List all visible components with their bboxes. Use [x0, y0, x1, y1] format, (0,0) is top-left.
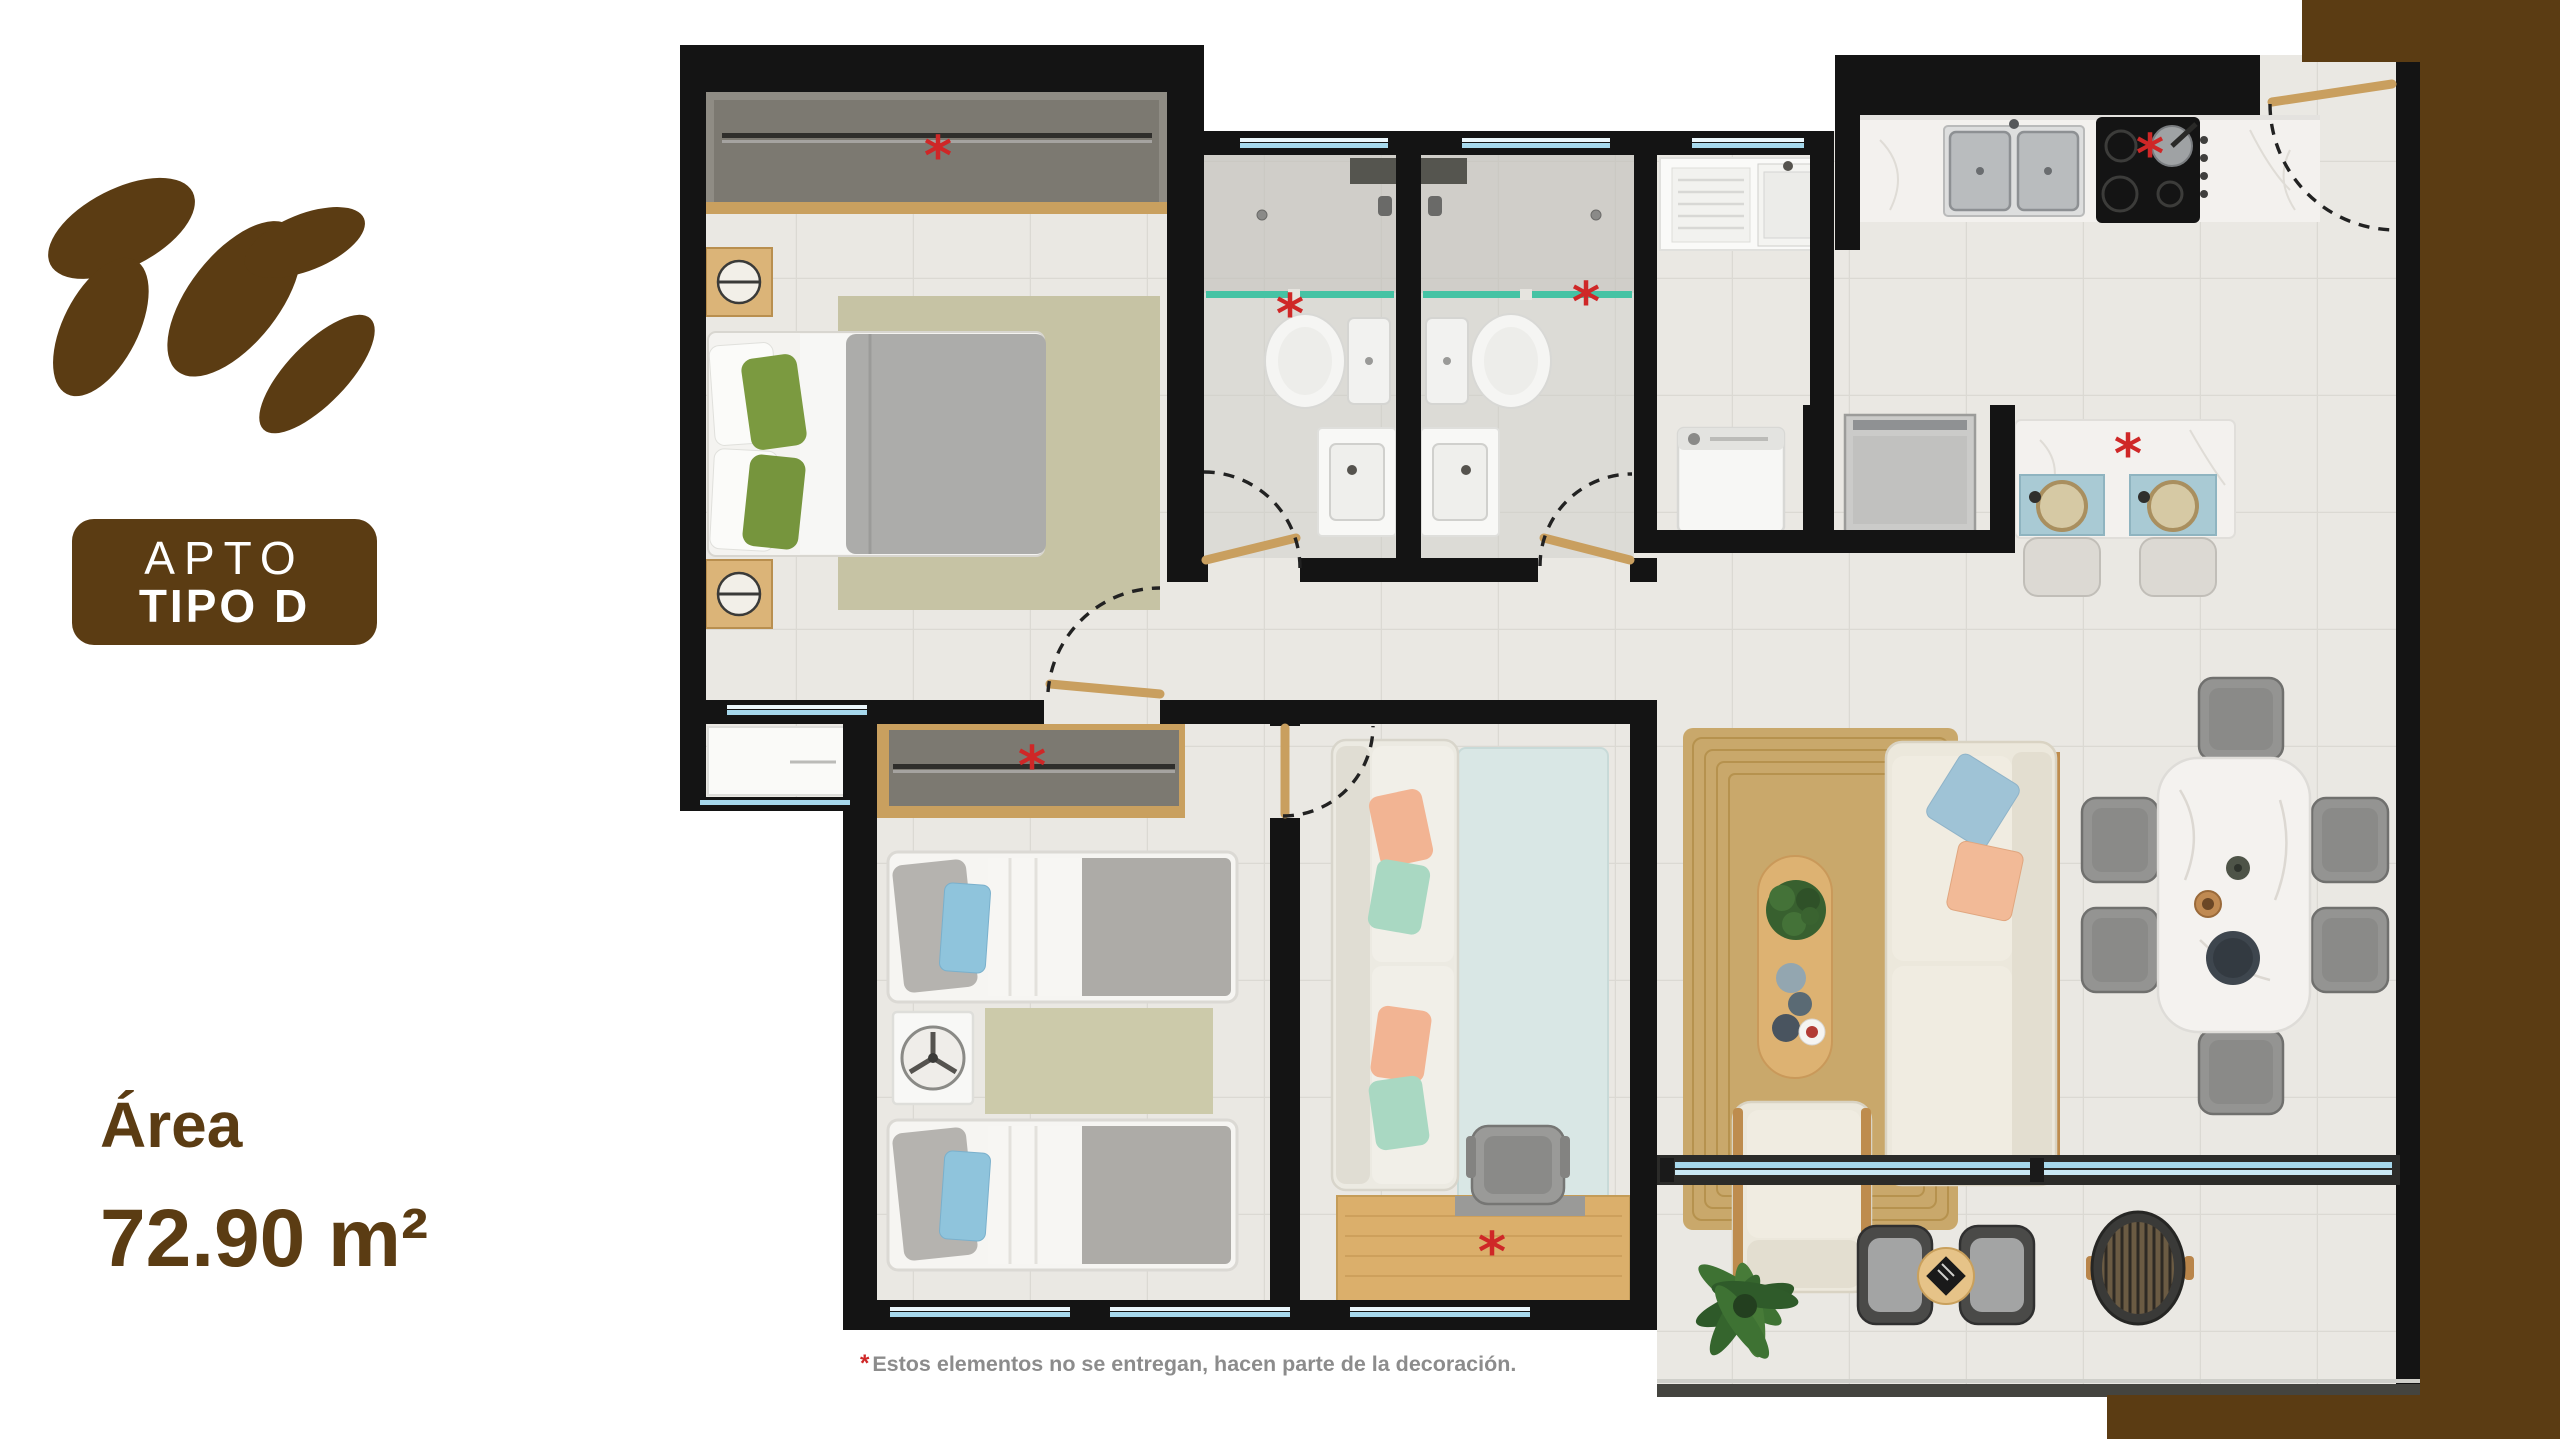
fan-nightstand — [893, 1012, 973, 1104]
bedroom2-rug — [985, 1008, 1213, 1114]
laundry-sink — [1660, 158, 1822, 250]
kitchen-counter — [1860, 115, 2320, 222]
decor-asterisk: * — [2114, 423, 2142, 486]
disclaimer-asterisk-icon: * — [860, 1350, 869, 1377]
balcony-side-table — [1918, 1248, 1974, 1304]
living-sofa — [1886, 742, 2060, 1185]
page: APTO TIPO D Área 72.90 m² — [0, 0, 2560, 1439]
kitchen-sink — [1944, 119, 2084, 216]
brown-corner-top — [2302, 0, 2420, 62]
dining-chair — [2082, 908, 2158, 992]
brown-side-band — [2420, 0, 2560, 1439]
dining-chair — [2199, 1030, 2283, 1114]
dining-table — [2158, 758, 2310, 1032]
armchair — [1733, 1102, 1871, 1292]
decor-asterisk: * — [1478, 1221, 1506, 1284]
dining-chair — [2199, 678, 2283, 760]
decor-asterisk: * — [924, 125, 952, 188]
brown-corner-bottom — [2107, 1395, 2420, 1439]
floor-plan: * * * * * * * — [0, 0, 2560, 1439]
bedroom-2 — [877, 724, 1237, 1270]
study-sofa — [1332, 740, 1458, 1190]
appliance — [1845, 415, 1975, 532]
desk-chair — [1466, 1126, 1570, 1204]
disclaimer: *Estos elementos no se entregan, hacen p… — [860, 1350, 1516, 1378]
decor-asterisk: * — [1276, 283, 1304, 346]
dining-chair — [2312, 908, 2388, 992]
study-area — [1332, 740, 1630, 1302]
dining-chair — [2082, 798, 2158, 882]
single-bed-2 — [888, 1120, 1237, 1270]
nightstand-lamp — [706, 248, 772, 316]
coffee-table — [1758, 856, 1832, 1078]
disclaimer-text: Estos elementos no se entregan, hacen pa… — [872, 1352, 1516, 1376]
decor-asterisk: * — [2136, 123, 2164, 186]
washing-machine — [1678, 428, 1784, 532]
single-bed-1 — [888, 852, 1237, 1002]
master-bed — [708, 332, 1046, 556]
dining-chair — [2312, 798, 2388, 882]
decor-asterisk: * — [1018, 735, 1046, 798]
decor-asterisk: * — [1572, 271, 1600, 334]
vanity — [1421, 428, 1499, 536]
nightstand-lamp — [706, 560, 772, 628]
vanity — [1318, 428, 1396, 536]
toilet-icon — [1426, 314, 1551, 408]
dresser — [708, 727, 845, 795]
